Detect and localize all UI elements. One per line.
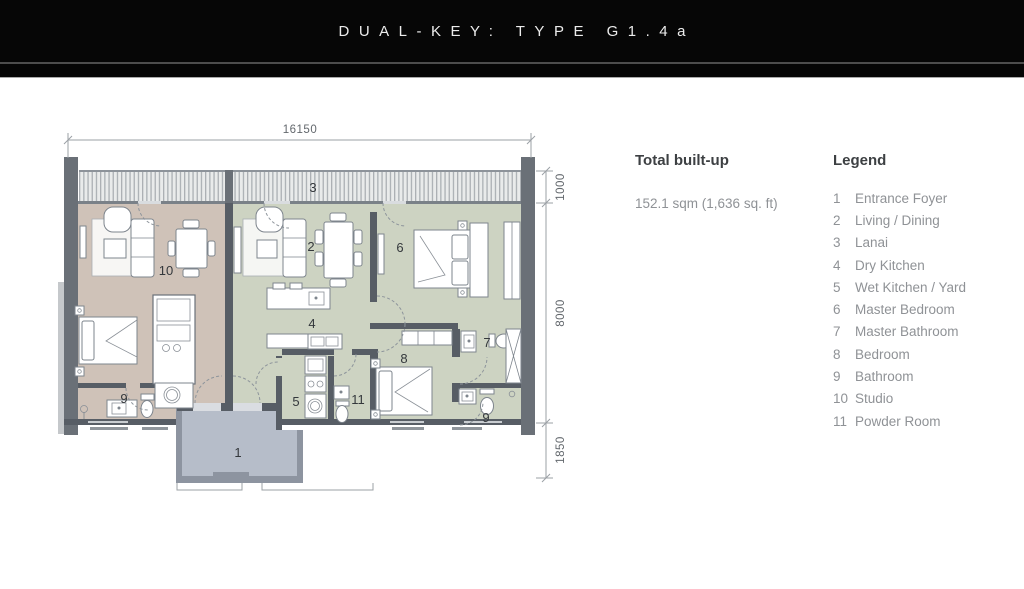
legend-item-num: 5 bbox=[833, 280, 855, 295]
legend-item-num: 4 bbox=[833, 258, 855, 273]
legend-item: 1Entrance Foyer bbox=[833, 187, 1013, 209]
legend-item: 7Master Bathroom bbox=[833, 321, 1013, 343]
legend-item-num: 1 bbox=[833, 191, 855, 206]
legend-item-num: 9 bbox=[833, 369, 855, 384]
legend-item-label: Master Bedroom bbox=[855, 302, 955, 317]
room-label-bathroom-right: 9 bbox=[482, 410, 489, 425]
living-dining-furniture bbox=[234, 207, 362, 287]
legend-item-label: Studio bbox=[855, 391, 893, 406]
legend-item-num: 8 bbox=[833, 347, 855, 362]
room-label-lanai: 3 bbox=[309, 180, 316, 195]
legend-item-num: 2 bbox=[833, 213, 855, 228]
legend-item: 5Wet Kitchen / Yard bbox=[833, 276, 1013, 298]
legend-list: 1Entrance Foyer 2Living / Dining 3Lanai … bbox=[833, 187, 1013, 432]
legend-item-label: Wet Kitchen / Yard bbox=[855, 280, 966, 295]
legend-item-num: 11 bbox=[833, 414, 855, 429]
legend-item: 3Lanai bbox=[833, 232, 1013, 254]
room-label-master-bathroom: 7 bbox=[483, 335, 490, 350]
room-label-living: 2 bbox=[307, 239, 314, 254]
legend-item-label: Living / Dining bbox=[855, 213, 940, 228]
room-label-studio: 10 bbox=[159, 263, 173, 278]
legend-item-label: Bedroom bbox=[855, 347, 910, 362]
legend-item-label: Master Bathroom bbox=[855, 324, 959, 339]
legend-item: 4Dry Kitchen bbox=[833, 254, 1013, 276]
dim-body-depth: 8000 bbox=[555, 299, 567, 327]
page: DUAL-KEY: TYPE G1.4a bbox=[0, 0, 1024, 589]
powder-room-fixtures bbox=[334, 386, 349, 423]
legend-item: 11Powder Room bbox=[833, 410, 1013, 432]
room-label-dry-kitchen: 4 bbox=[308, 316, 315, 331]
legend-item-num: 6 bbox=[833, 302, 855, 317]
legend-heading: Legend bbox=[833, 152, 1013, 169]
dim-top: 16150 bbox=[283, 124, 317, 136]
legend-item: 10Studio bbox=[833, 388, 1013, 410]
legend-item-label: Entrance Foyer bbox=[855, 191, 947, 206]
legend-item-num: 7 bbox=[833, 324, 855, 339]
legend-item-label: Lanai bbox=[855, 235, 888, 250]
legend-section: Legend 1Entrance Foyer 2Living / Dining … bbox=[833, 152, 1013, 432]
dim-lower-depth: 1850 bbox=[555, 436, 567, 464]
legend-item-num: 3 bbox=[833, 235, 855, 250]
room-label-wet-kitchen: 5 bbox=[292, 394, 299, 409]
room-label-powder: 11 bbox=[351, 392, 365, 407]
built-up-heading: Total built-up bbox=[635, 152, 825, 169]
wet-kitchen-furniture bbox=[305, 356, 326, 418]
legend-item-label: Bathroom bbox=[855, 369, 914, 384]
dim-lanai-depth: 1000 bbox=[555, 173, 567, 201]
room-label-master-bedroom: 6 bbox=[396, 240, 403, 255]
legend-item: 8Bedroom bbox=[833, 343, 1013, 365]
legend-item-label: Dry Kitchen bbox=[855, 258, 925, 273]
legend-item-label: Powder Room bbox=[855, 414, 941, 429]
legend-item: 6Master Bedroom bbox=[833, 298, 1013, 320]
legend-item: 9Bathroom bbox=[833, 365, 1013, 387]
room-label-bathroom-left: 9 bbox=[120, 391, 127, 406]
built-up-value: 152.1 sqm (1,636 sq. ft) bbox=[635, 196, 825, 211]
lanai-deck bbox=[78, 170, 522, 204]
legend-item: 2Living / Dining bbox=[833, 209, 1013, 231]
built-up-section: Total built-up 152.1 sqm (1,636 sq. ft) bbox=[635, 152, 825, 211]
room-label-foyer: 1 bbox=[234, 445, 241, 460]
legend-item-num: 10 bbox=[833, 391, 855, 406]
floor-plan: 16150 1000 8000 1850 3 10 2 4 6 7 8 11 9… bbox=[0, 0, 640, 589]
room-label-bedroom: 8 bbox=[400, 351, 407, 366]
